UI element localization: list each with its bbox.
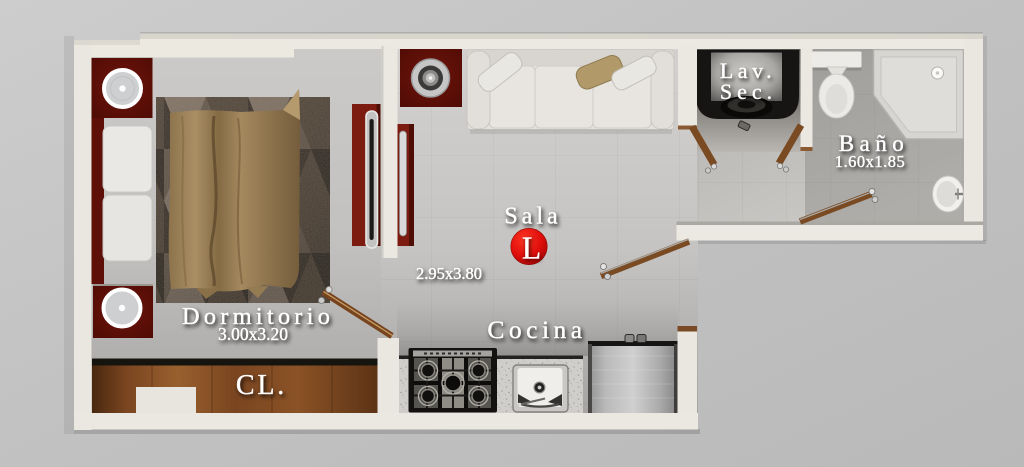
svg-text:3.00x3.20: 3.00x3.20: [218, 324, 288, 344]
svg-text:L: L: [522, 231, 541, 266]
svg-text:Sec.: Sec.: [720, 79, 777, 104]
svg-text:Cocina: Cocina: [487, 315, 586, 344]
svg-text:1.60x1.85: 1.60x1.85: [835, 152, 906, 171]
svg-text:Sala: Sala: [504, 204, 561, 230]
svg-text:CL.: CL.: [236, 370, 287, 401]
svg-text:2.95x3.80: 2.95x3.80: [416, 264, 482, 283]
